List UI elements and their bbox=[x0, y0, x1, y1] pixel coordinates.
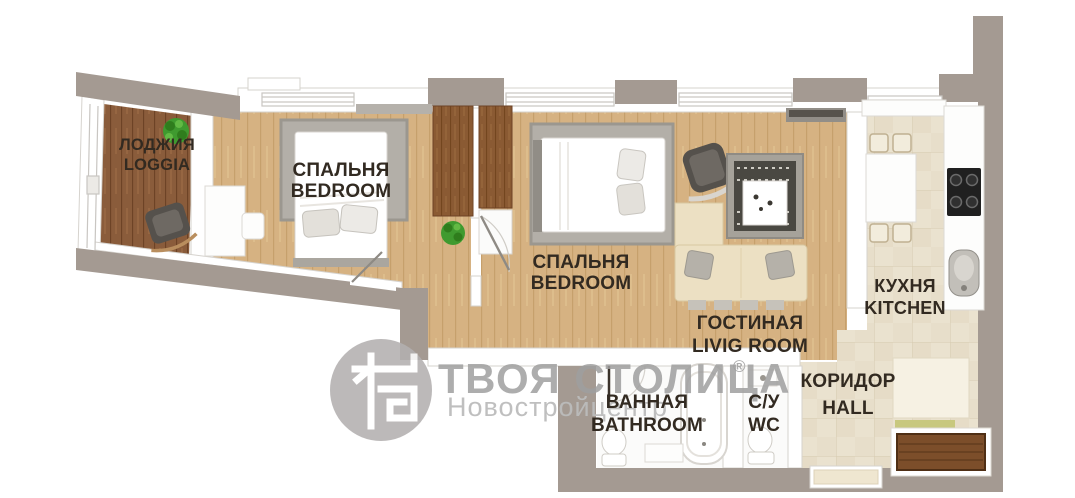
entrance-door bbox=[810, 466, 882, 488]
hall-closet-strip bbox=[895, 420, 955, 428]
bathroom-cabinet-icon bbox=[645, 444, 683, 462]
wc-label-en: WC bbox=[748, 415, 780, 436]
wardrobe-icon-2 bbox=[479, 106, 512, 208]
bedroom2-window bbox=[506, 93, 614, 106]
bathroom-label-en: BATHROOM bbox=[591, 415, 703, 436]
kitchen-label-en: KITCHEN bbox=[864, 298, 945, 318]
hall-label-en: HALL bbox=[822, 398, 874, 419]
bedroom2-plant-icon bbox=[441, 221, 465, 245]
hall-closet-icon bbox=[893, 358, 969, 418]
bedrooms-divider-wall-low bbox=[471, 276, 481, 306]
bedroom1-shelf-icon bbox=[356, 104, 432, 114]
window-bump bbox=[248, 78, 300, 90]
floor-plan-svg: ТВОЯ СТОЛИЦА ® Новостройцентр ЛОДЖИЯ LOG… bbox=[0, 0, 1075, 498]
kitchen-label-ru: КУХНЯ bbox=[874, 276, 936, 296]
hall-label-ru: КОРИДОР bbox=[800, 371, 895, 392]
bathroom-wall-bottom bbox=[558, 468, 803, 492]
bedroom1-label-ru: СПАЛЬНЯ bbox=[292, 160, 389, 181]
wc-label-ru: С/У bbox=[748, 392, 779, 413]
watermark-registered-mark: ® bbox=[733, 357, 747, 376]
doormat-icon bbox=[891, 428, 991, 476]
loggia-label-ru: ЛОДЖИЯ bbox=[119, 136, 195, 154]
living-kitchen-wall bbox=[847, 112, 867, 308]
living-label-ru: ГОСТИНАЯ bbox=[697, 313, 804, 334]
loggia-label-en: LOGGIA bbox=[124, 156, 190, 174]
wardrobe-icon-1 bbox=[433, 106, 473, 216]
kitchen-sink-icon bbox=[949, 250, 979, 296]
wall-stub-3 bbox=[793, 78, 867, 102]
floor-plan-image: ТВОЯ СТОЛИЦА ® Новостройцентр ЛОДЖИЯ LOG… bbox=[0, 0, 1075, 498]
living-rug-icon bbox=[727, 154, 803, 238]
bathroom-label-ru: ВАННАЯ bbox=[606, 392, 689, 413]
bedroom2-bed-icon bbox=[533, 138, 665, 232]
watermark-logo-icon bbox=[330, 339, 432, 441]
outer-wall-top-right-stub bbox=[973, 16, 1003, 98]
cooktop-icon bbox=[947, 168, 981, 216]
living-window bbox=[679, 93, 792, 106]
dining-table-icon bbox=[866, 154, 916, 222]
wall-stub-1 bbox=[428, 78, 504, 106]
bedroom1-window bbox=[262, 93, 354, 106]
bedroom1-chair-icon bbox=[242, 213, 264, 239]
bedroom1-label-en: BEDROOM bbox=[291, 181, 392, 202]
wall-stub-2 bbox=[615, 80, 677, 104]
coffee-table-icon bbox=[743, 181, 787, 225]
kitchen-window-counter bbox=[862, 100, 946, 116]
bedroom2-label-en: BEDROOM bbox=[531, 273, 632, 294]
tv-shelf-icon bbox=[786, 108, 846, 122]
bedroom1-desk-icon bbox=[205, 186, 245, 256]
living-label-en: LIVIG ROOM bbox=[692, 336, 808, 357]
bedroom2-label-ru: СПАЛЬНЯ bbox=[532, 252, 629, 273]
